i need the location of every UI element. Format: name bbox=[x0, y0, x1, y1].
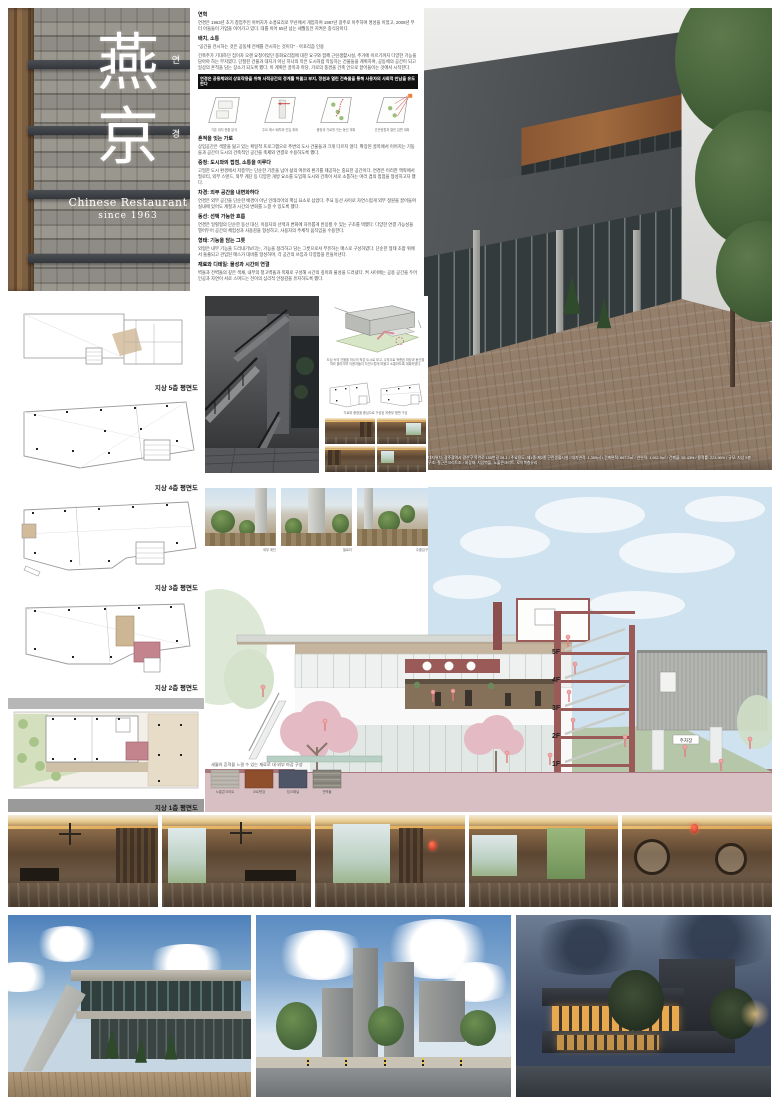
plan-1f-drawing bbox=[8, 694, 204, 798]
interior-thumb-4 bbox=[377, 446, 427, 472]
site-diagram-row: 기존 대지 현황 분석 주요 매스 배치와 진입 계획 중정과 bbox=[198, 92, 418, 132]
floor-plans-column: 지상 5층 평면도 지상 4층 bbox=[8, 296, 204, 812]
moon-gate-screen bbox=[715, 843, 747, 875]
glass-facade bbox=[81, 981, 241, 1012]
wood-partition bbox=[399, 828, 423, 883]
restaurant-sign: 燕 연 京 경 Chinese Restaurant since 1963 bbox=[68, 26, 188, 286]
photo-main-exterior: 대지위치: 광주광역시 광산구 목련로 155번길 28-1 / 주요용도: 제… bbox=[424, 8, 772, 470]
plan-4f-label: 지상 4층 평면도 bbox=[155, 482, 198, 492]
dining-table bbox=[20, 868, 59, 881]
interior-photo-strip bbox=[8, 815, 772, 907]
sign-hanja-yeon: 燕 연 bbox=[68, 26, 188, 100]
heading-layout: 배치, 소통 bbox=[198, 36, 418, 43]
interior-photo-dining-aisle bbox=[8, 815, 158, 907]
plan-2f bbox=[16, 598, 200, 678]
interior-photo-private-room bbox=[622, 815, 772, 907]
site-diagram-4-drawing bbox=[366, 92, 418, 128]
floor-label-1f: 1F bbox=[552, 761, 561, 768]
plan-3f-label: 지상 3층 평면도 bbox=[155, 582, 198, 592]
plan-4f-drawing bbox=[16, 398, 200, 478]
red-lantern-icon bbox=[429, 841, 436, 850]
site-diagram-3-drawing bbox=[310, 92, 362, 128]
wood-floor bbox=[315, 883, 465, 907]
lattice-wall bbox=[168, 828, 207, 883]
body-material: 벽돌과 전벽돌의 깊은 색채, 내부의 청고벽돌과 목재로 구성해 시간의 깊이… bbox=[198, 270, 418, 282]
mini-plans-caption: 가로와 중정을 중심으로 구성된 저층부 평면 구성 bbox=[326, 411, 425, 415]
street-lamp-glow bbox=[740, 999, 770, 1029]
courtyard-photo-2: 필로티 bbox=[281, 488, 352, 556]
conifer-tree bbox=[596, 298, 610, 328]
sign-subtitle: Chinese Restaurant bbox=[68, 196, 188, 209]
plan-5f-drawing bbox=[16, 304, 196, 380]
moon-gate-screen bbox=[634, 839, 670, 875]
exterior-photo-street-view bbox=[256, 915, 511, 1097]
body-borrowed-scenery: 연경은 외부 공간을 단순한 배경이 아닌 인테리어의 핵심 요소로 삼았다. … bbox=[198, 198, 418, 210]
plan-1f-label-band: 지상 1층 평면도 bbox=[8, 799, 204, 812]
courtyard-photo-3: 주출입구 bbox=[357, 488, 428, 556]
body-courtyard: 고밀한 도시 환경에서 저층부는 단순한 기준을 넘어 삶의 여유와 환기를 제… bbox=[198, 168, 418, 186]
floor-label-3f: 3F bbox=[552, 705, 561, 712]
sign-hanja-gyeong: 京 경 bbox=[68, 100, 188, 174]
site-diagram-4: 선큰정원과 열린 입면 계획 bbox=[366, 92, 418, 132]
wood-floor bbox=[469, 883, 619, 907]
tall-window bbox=[333, 824, 390, 885]
plan-5f-label: 지상 5층 평면도 bbox=[155, 382, 198, 392]
red-lantern-icon bbox=[691, 824, 698, 833]
exterior-photo-stair-terrace bbox=[8, 915, 251, 1097]
site-diagram-1: 기존 대지 현황 분석 bbox=[198, 92, 250, 132]
street-tree bbox=[460, 1010, 496, 1046]
site-diagram-3-caption: 중정과 가로를 잇는 동선 계획 bbox=[310, 128, 362, 132]
low-window bbox=[472, 835, 517, 875]
site-diagram-4-caption: 선큰정원과 열린 입면 계획 bbox=[366, 128, 418, 132]
plan-2f-drawing bbox=[16, 598, 200, 678]
exterior-photo-dusk-view bbox=[516, 915, 771, 1097]
interior-thumb-2 bbox=[377, 418, 427, 444]
heading-borrowed-scenery: 차경: 외부 공간을 내면화하다 bbox=[198, 190, 418, 197]
axon-caption: 도심 속의 건물을 하나의 작은 도시로 보고, 수직으로 적층된 마당과 동선… bbox=[326, 358, 425, 367]
floor-label-2f: 2F bbox=[552, 733, 561, 740]
chair-row bbox=[245, 870, 296, 881]
interior-photo-round-table bbox=[469, 815, 619, 907]
courtyard-photo-2-caption: 필로티 bbox=[281, 547, 352, 552]
body-history: 연경은 1963년 초기 창업주인 아버지가 소흥요리로 부산에서 개업하여 1… bbox=[198, 20, 418, 32]
heading-circulation: 동선: 선택 가능한 흐름 bbox=[198, 214, 418, 221]
interior-photo-window-greenery bbox=[315, 815, 465, 907]
plan-3f bbox=[16, 498, 200, 578]
sign-hangul-yeon: 연 bbox=[172, 24, 180, 98]
interior-thumb-3 bbox=[325, 446, 375, 472]
lit-ground-floor bbox=[557, 1035, 659, 1050]
courtyard-photo-1-image bbox=[205, 488, 276, 546]
site-diagram-2-caption: 주요 매스 배치와 진입 계획 bbox=[254, 128, 306, 132]
wood-floor bbox=[622, 883, 772, 907]
site-diagram-1-drawing bbox=[198, 92, 250, 128]
concrete-tower bbox=[353, 948, 379, 1061]
material-label-3: 징크패널 bbox=[287, 789, 299, 794]
photo-interior-stair bbox=[205, 296, 319, 473]
site-diagram-1-caption: 기존 대지 현황 분석 bbox=[198, 128, 250, 132]
deck-band bbox=[76, 1011, 251, 1018]
sign-since: since 1963 bbox=[68, 211, 188, 221]
concept-text-column: 연혁 연경은 1963년 초기 창업주인 아버지가 소흥요리로 부산에서 개업하… bbox=[198, 8, 418, 294]
dusk-tree bbox=[608, 970, 664, 1032]
body-street: 상업공간은 색깔을 잃고 있는 획일적 프로그램으로 주변의 도시 건물들과 크… bbox=[198, 144, 418, 156]
courtyard-photo-1: 외부 계단 bbox=[205, 488, 276, 556]
plan-1f-label: 지상 1층 평면도 bbox=[155, 802, 198, 812]
wood-floor bbox=[162, 883, 312, 907]
wood-slat-texture bbox=[8, 8, 34, 291]
interior-photo-lattice-corridor bbox=[162, 815, 312, 907]
interior-thumb-grid bbox=[325, 418, 426, 472]
presentation-board: 燕 연 京 경 Chinese Restaurant since 1963 연혁… bbox=[0, 0, 780, 1102]
roof-slab bbox=[71, 970, 251, 981]
ceiling-fan-icon bbox=[59, 833, 81, 835]
conifer-tree bbox=[563, 276, 581, 314]
material-label-1: 노출콘크리트 bbox=[216, 789, 235, 794]
concrete-mass bbox=[322, 988, 353, 1061]
green-mural bbox=[547, 828, 586, 880]
exterior-photo-strip bbox=[8, 915, 772, 1097]
wood-floor bbox=[8, 883, 158, 907]
project-data-caption: 대지위치: 광주광역시 광산구 목련로 155번길 28-1 / 주요용도: 제… bbox=[424, 454, 772, 470]
site-diagram-3: 중정과 가로를 잇는 동선 계획 bbox=[310, 92, 362, 132]
body-form: 외형은 내부 기능을 드러내기보다는, 기능을 정리하고 담는 그릇으로서 부유… bbox=[198, 246, 418, 258]
building-column bbox=[473, 230, 480, 359]
axon-concept-panel: 도심 속의 건물을 하나의 작은 도시로 보고, 수직으로 적층된 마당과 동선… bbox=[323, 296, 428, 473]
sign-hangul-gyeong: 경 bbox=[172, 98, 180, 172]
mini-plan-right bbox=[378, 380, 424, 410]
mini-plan-left bbox=[327, 380, 373, 410]
site-diagram-2: 주요 매스 배치와 진입 계획 bbox=[254, 92, 306, 132]
plan-1f bbox=[8, 694, 204, 798]
stair-photo-drawing bbox=[205, 296, 319, 473]
site-diagram-2-drawing bbox=[254, 92, 306, 128]
exterior-stair bbox=[23, 984, 86, 1071]
body-brief: 건축주가 기대하던 집이자 오랜 요청이었던 중화요리점에 대한 요구와 함께 … bbox=[198, 53, 418, 71]
courtyard-photo-1-caption: 외부 계단 bbox=[205, 547, 276, 552]
body-quote: "공간을 전시하는 것은 공동체 전체를 전시하는 것이다" - 아포리즘 인용 bbox=[198, 44, 418, 50]
axon-diagram bbox=[329, 300, 422, 356]
concept-highlight-bar: 연경은 공동체와의 상호작용을 위해 사적공간의 경계를 허물고 부지, 정원과… bbox=[198, 74, 418, 89]
ceiling-fan-icon bbox=[230, 832, 252, 834]
street-tree bbox=[368, 1006, 404, 1046]
plan-3f-drawing bbox=[16, 498, 200, 578]
materials-caption: 세월의 흔적을 느낄 수 있는 재료로 내·외부 마감 구성 bbox=[211, 761, 303, 768]
heading-form: 형태: 기능을 담는 그릇 bbox=[198, 238, 418, 245]
street-tree bbox=[276, 1002, 317, 1049]
floor-label-5f: 5F bbox=[552, 649, 561, 656]
plan-4f bbox=[16, 398, 200, 478]
courtyard-photo-row: 외부 계단 필로티 주출입구 bbox=[205, 488, 428, 556]
concrete-mass bbox=[419, 981, 465, 1043]
project-data-line-2: 구조: 철근콘크리트조 / 외장재: 치장벽돌, 노출콘크리트, 로이복층유리 bbox=[428, 461, 768, 467]
plan-5f bbox=[16, 304, 196, 380]
body-circulation: 연경은 일렬형의 단순한 동선 대신, 이용자의 선택과 변화에 자유롭게 반응… bbox=[198, 222, 418, 234]
courtyard-photo-3-caption: 주출입구 bbox=[357, 547, 428, 552]
courtyard-photo-3-image bbox=[357, 488, 428, 546]
heading-history: 연혁 bbox=[198, 12, 418, 19]
floor-label-4f: 4F bbox=[552, 677, 561, 684]
heading-courtyard: 중정: 도시와의 접점, 소통을 이루다 bbox=[198, 160, 418, 167]
courtyard-photo-2-image bbox=[281, 488, 352, 546]
photo-brand-sign: 燕 연 京 경 Chinese Restaurant since 1963 bbox=[8, 8, 190, 291]
heading-street: 흔적을 잇는 가로 bbox=[198, 136, 418, 143]
material-label-2: 코르텐강 bbox=[253, 789, 265, 794]
lattice-screen bbox=[116, 828, 158, 883]
parking-label: 주차장 bbox=[680, 737, 693, 744]
plan-2f-label: 지상 2층 평면도 bbox=[155, 682, 198, 692]
interior-thumb-1 bbox=[325, 418, 375, 444]
material-label-4: 전벽돌 bbox=[322, 789, 331, 794]
heading-material: 재료와 디테일: 물성과 시간의 연결 bbox=[198, 262, 418, 269]
